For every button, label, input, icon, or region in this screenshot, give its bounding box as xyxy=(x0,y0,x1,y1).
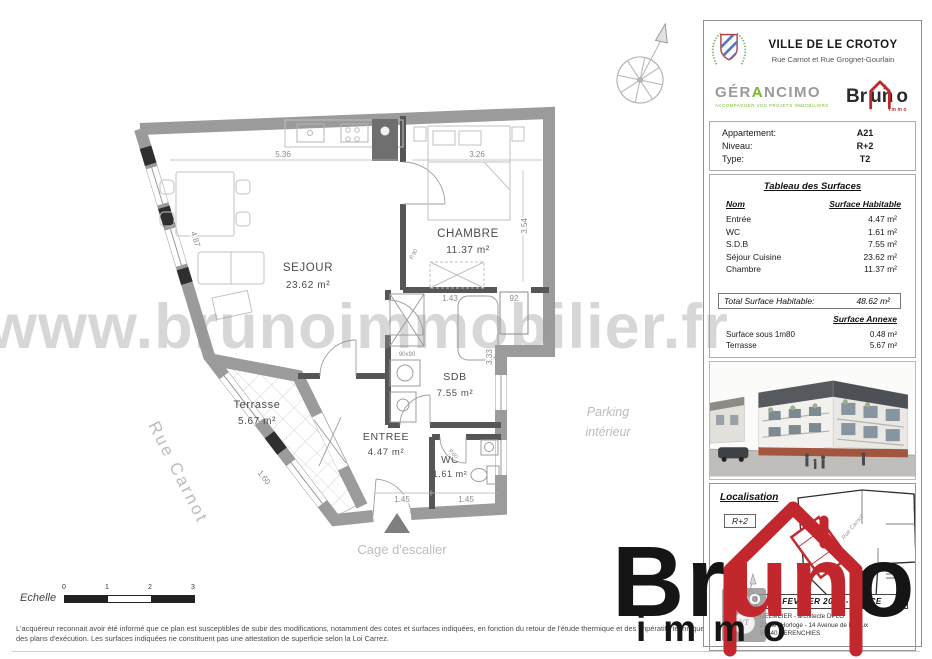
scale-bar: Echelle 0 1 2 3 xyxy=(20,585,230,609)
svg-text:4.87: 4.87 xyxy=(189,231,202,249)
room-area-sejour: 23.62 m² xyxy=(286,280,330,291)
architect-address: UELMEIER - architecte DPLG ZA de l'Horlo… xyxy=(760,613,868,639)
stairwell-label: Cage d'escalier xyxy=(357,542,447,557)
room-label-sdb: SDB xyxy=(443,371,466,383)
building-photo xyxy=(709,361,916,480)
table-row: Entrée4.47 m² xyxy=(710,213,915,226)
dimension-lines xyxy=(170,160,542,496)
parking-label-1: Parking xyxy=(587,405,629,419)
stamp-icon: VT xyxy=(733,612,755,634)
parking-label-2: intérieur xyxy=(585,425,631,439)
room-label-sejour: SEJOUR xyxy=(283,262,333,274)
address-subtitle: Rue Carnot et Rue Grognet-Gourlain xyxy=(752,55,914,64)
room-label-entree: ENTREE xyxy=(363,431,409,443)
panel-header: VILLE DE LE CROTOY Rue Carnot et Rue Gro… xyxy=(707,24,918,76)
bruno-logo-small: Bruno immo xyxy=(846,84,908,113)
room-area-terrasse: 5.67 m² xyxy=(238,416,276,427)
floor-plan-document: SEJOUR 23.62 m² CHAMBRE 11.37 m² SDB 7.5… xyxy=(0,0,932,659)
total-surface: Total Surface Habitable:48.62 m² xyxy=(718,293,901,309)
red-house-outline-icon xyxy=(866,78,894,111)
surface-table: Tableau des Surfaces NomSurface Habitabl… xyxy=(709,174,916,358)
table-row: Surface sous 1m800.48 m² xyxy=(726,330,897,339)
table-row: S.D.B7.55 m² xyxy=(710,238,915,251)
room-area-entree: 4.47 m² xyxy=(368,447,404,458)
gerancimo-tagline: ACCOMPAGNER VOS PROJETS IMMOBILIERS xyxy=(715,103,829,108)
svg-text:P.90: P.90 xyxy=(409,248,420,260)
city-title: VILLE DE LE CROTOY xyxy=(752,39,914,51)
dimension-labels: 5.36 3.26 3.54 4.87 1.43 92 3.33 1.45 1.… xyxy=(189,150,529,504)
annexe-title: Surface Annexe xyxy=(833,314,897,324)
svg-text:90x90: 90x90 xyxy=(399,352,416,358)
table-row: Terrasse5.67 m² xyxy=(726,341,897,350)
localisation-section: Rue Carnot Localisation R+2 ADO VT FEVRI… xyxy=(709,483,916,651)
surface-table-title: Tableau des Surfaces xyxy=(710,181,915,192)
room-area-chambre: 11.37 m² xyxy=(446,245,490,256)
svg-text:3.54: 3.54 xyxy=(520,218,529,234)
localisation-title: Localisation xyxy=(720,492,778,503)
compass-rose-icon xyxy=(613,17,675,108)
info-row-apartment: Appartement:A21 xyxy=(722,127,903,140)
svg-text:1.60: 1.60 xyxy=(256,469,273,487)
info-panel: VILLE DE LE CROTOY Rue Carnot et Rue Gro… xyxy=(703,20,922,647)
gerancimo-logo: GÉRANCIMO ACCOMPAGNER VOS PROJETS IMMOBI… xyxy=(715,84,829,108)
svg-text:5.36: 5.36 xyxy=(275,150,291,159)
room-label-chambre: CHAMBRE xyxy=(437,228,499,240)
page-bottom-rule xyxy=(12,651,920,652)
localisation-level-badge: R+2 xyxy=(724,514,756,528)
plan-date: FEVRIER 2022 - INDICE xyxy=(756,594,908,609)
svg-text:92: 92 xyxy=(510,294,519,303)
apartment-info: Appartement:A21 Niveau:R+2 Type:T2 xyxy=(709,121,916,171)
info-row-type: Type:T2 xyxy=(722,153,903,166)
map-street-label: Rue Carnot xyxy=(841,514,866,542)
entrance-triangle-icon xyxy=(384,513,410,533)
street-label: Rue Carnot xyxy=(144,418,212,526)
scale-ruler xyxy=(64,595,195,603)
svg-text:3.33: 3.33 xyxy=(485,349,494,365)
coat-of-arms-icon xyxy=(711,28,747,75)
room-area-sdb: 7.55 m² xyxy=(437,388,473,399)
svg-text:1.45: 1.45 xyxy=(394,495,410,504)
plan-annotations: Rue Carnot Parking intérieur Cage d'esca… xyxy=(144,405,631,557)
svg-text:3.26: 3.26 xyxy=(469,150,485,159)
svg-text:1.45: 1.45 xyxy=(458,495,474,504)
gerancimo-a-icon: A xyxy=(752,84,764,101)
room-label-terrasse: Terrasse xyxy=(234,399,281,411)
table-row: Séjour Cuisine23.62 m² xyxy=(710,251,915,264)
table-row: Chambre11.37 m² xyxy=(710,263,915,276)
surface-table-header: NomSurface Habitable xyxy=(710,199,915,209)
certification-badge: ADO VT xyxy=(722,588,766,642)
logos-row: GÉRANCIMO ACCOMPAGNER VOS PROJETS IMMOBI… xyxy=(707,76,918,119)
svg-text:1.43: 1.43 xyxy=(442,294,458,303)
table-row: WC1.61 m² xyxy=(710,226,915,239)
scale-label: Echelle xyxy=(20,592,56,604)
room-area-wc: 1.61 m² xyxy=(433,469,468,479)
info-row-level: Niveau:R+2 xyxy=(722,140,903,153)
